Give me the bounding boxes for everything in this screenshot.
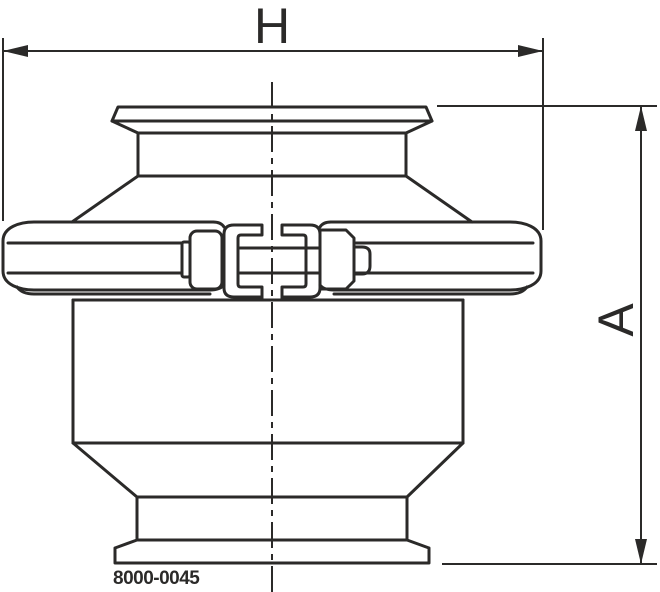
a-arrow-bottom xyxy=(635,539,647,564)
clamp-bracket-right xyxy=(282,225,320,297)
a-dimension-label: A xyxy=(588,303,644,337)
clamp-bracket-left xyxy=(224,225,262,297)
h-dimension-label: H xyxy=(254,0,290,54)
drawing-number: 8000-0045 xyxy=(113,568,200,589)
dimension-a: A xyxy=(437,106,657,564)
a-arrow-top xyxy=(635,106,647,131)
clamp-bolt-rod xyxy=(240,248,320,273)
drawing-number-group: 8000-0045 xyxy=(113,568,200,589)
clamp-band-right xyxy=(331,222,541,290)
valve-dimension-drawing: H A 8000-0045 xyxy=(0,0,660,592)
h-arrow-right xyxy=(518,45,543,57)
technical-drawing-canvas: H A 8000-0045 xyxy=(0,0,660,592)
clamp-bolt-tip xyxy=(354,247,370,274)
body-shell xyxy=(73,300,463,443)
clamp-wing-nut xyxy=(320,230,354,289)
clamp-hinge-block xyxy=(190,231,222,289)
bottom-cone xyxy=(73,443,463,497)
h-arrow-left xyxy=(3,45,28,57)
